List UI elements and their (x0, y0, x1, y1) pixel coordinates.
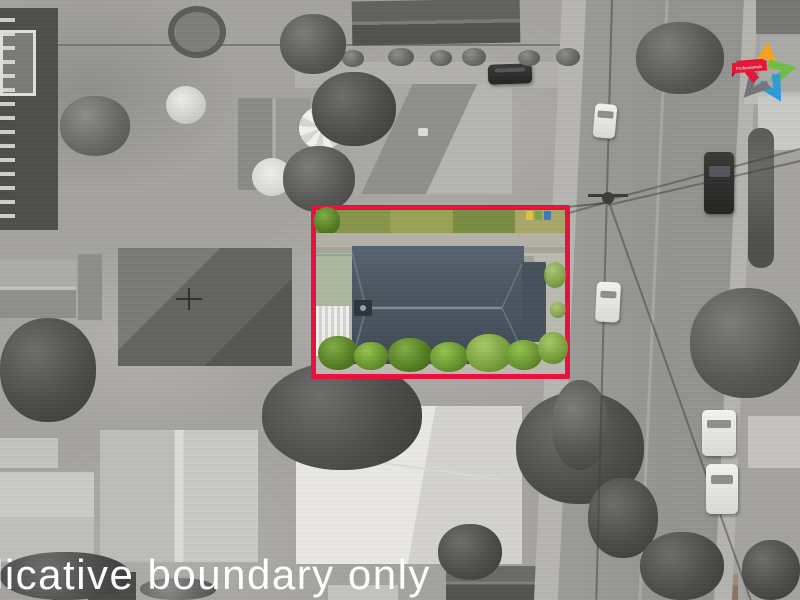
tree-gray (636, 22, 724, 94)
tree-gray (742, 540, 800, 600)
bin-yellow (526, 211, 533, 220)
shrub (342, 50, 364, 67)
tree-green (354, 342, 388, 370)
shrub (518, 50, 540, 66)
car-white (593, 103, 618, 139)
tree-gray (690, 288, 800, 398)
light-shed-farleft (0, 438, 58, 468)
property-boundary (311, 205, 570, 379)
aerial-photo: Professionals licative boundary only (0, 0, 800, 600)
building-right-top-roof (756, 0, 800, 34)
watermark-text: licative boundary only (0, 551, 431, 599)
dark-hipped-house-left (118, 248, 292, 366)
power-pole (602, 192, 614, 204)
footpath (316, 233, 565, 247)
car-white (702, 410, 736, 456)
dark-gable-roof-top (352, 0, 521, 45)
bush-green (550, 302, 566, 318)
shrub (462, 48, 486, 66)
long-gable-roof-left (0, 260, 76, 318)
van-white (706, 464, 738, 514)
tree-green (538, 332, 568, 364)
white-frame-structure (0, 30, 36, 96)
shed-roof-left (78, 254, 102, 320)
skylight (418, 128, 428, 136)
light-gable-house-bottomleft (100, 430, 258, 562)
tree-gray (640, 532, 724, 600)
shrub (388, 48, 414, 66)
truck-dark (704, 152, 734, 214)
bin-blue (544, 211, 551, 220)
tree-gray (280, 14, 346, 74)
white-dome (166, 86, 206, 124)
shrub (556, 48, 580, 66)
tree-green (388, 338, 432, 372)
tree-corner (314, 207, 340, 235)
bin-green (535, 211, 542, 220)
tree-green (318, 336, 358, 370)
car-white (595, 281, 621, 322)
brand-logo: Professionals (732, 36, 798, 108)
sage-roof (316, 254, 353, 306)
palm-tree (438, 524, 502, 580)
tree-gray (60, 96, 130, 156)
light-roof-farleft (0, 472, 94, 562)
round-tank (168, 6, 226, 58)
path-right-lower (748, 416, 800, 468)
tree-gray (283, 146, 355, 212)
hedge-right (748, 128, 774, 268)
van-parked-top (488, 63, 533, 85)
tree-green (506, 340, 542, 370)
tree-gray (312, 72, 396, 146)
tree-green (430, 342, 468, 372)
tv-antenna-mast (188, 288, 190, 310)
bush-green (544, 262, 566, 288)
shrub (430, 50, 452, 66)
tree-gray (0, 318, 96, 422)
